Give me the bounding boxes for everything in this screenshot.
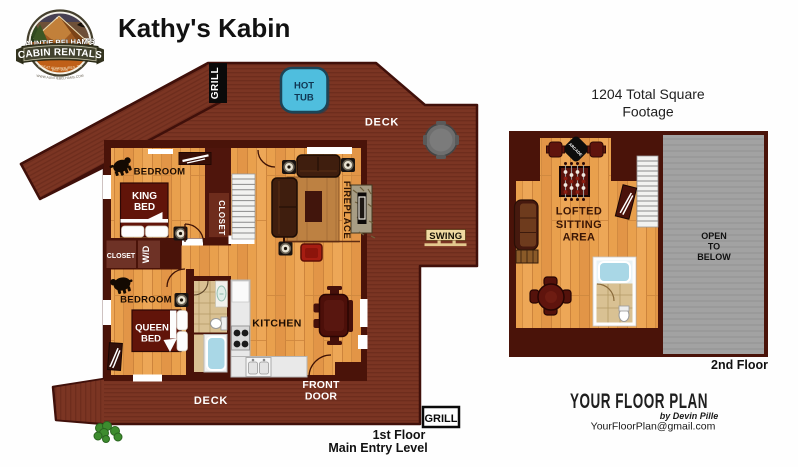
svg-text:GRILL: GRILL bbox=[425, 413, 458, 425]
svg-text:CLOSET: CLOSET bbox=[217, 200, 226, 235]
svg-text:TUB: TUB bbox=[294, 93, 314, 104]
svg-text:YourFloorPlan@gmail.com: YourFloorPlan@gmail.com bbox=[591, 421, 716, 433]
svg-text:AREA: AREA bbox=[563, 232, 596, 244]
svg-text:DOOR: DOOR bbox=[305, 391, 338, 403]
svg-text:YOUR FLOOR PLAN: YOUR FLOOR PLAN bbox=[570, 389, 708, 413]
svg-text:by Devin Pille: by Devin Pille bbox=[660, 411, 719, 421]
svg-text:BEDROOM: BEDROOM bbox=[120, 295, 172, 306]
svg-text:KITCHEN: KITCHEN bbox=[252, 318, 301, 330]
svg-text:BEDROOM: BEDROOM bbox=[134, 167, 186, 178]
svg-text:1204 Total Square: 1204 Total Square bbox=[591, 86, 705, 102]
svg-text:CLOSET: CLOSET bbox=[107, 253, 136, 260]
svg-text:FRONT: FRONT bbox=[302, 379, 340, 391]
svg-text:QUEEN: QUEEN bbox=[135, 323, 169, 334]
svg-text:BED: BED bbox=[141, 334, 161, 345]
svg-text:DECK: DECK bbox=[365, 117, 399, 129]
svg-text:KING: KING bbox=[132, 191, 157, 202]
svg-text:W/D: W/D bbox=[141, 245, 151, 263]
svg-text:OPEN: OPEN bbox=[701, 231, 727, 241]
svg-text:TO: TO bbox=[708, 242, 720, 252]
svg-text:SWING: SWING bbox=[429, 231, 462, 242]
svg-text:SITTING: SITTING bbox=[556, 219, 602, 231]
svg-text:1st Floor: 1st Floor bbox=[373, 428, 426, 442]
svg-text:Footage: Footage bbox=[622, 104, 674, 120]
svg-text:BELOW: BELOW bbox=[697, 252, 731, 262]
svg-text:DECK: DECK bbox=[194, 395, 228, 407]
svg-text:Kathy's Kabin: Kathy's Kabin bbox=[118, 13, 290, 43]
svg-text:EST. 1999: EST. 1999 bbox=[52, 68, 68, 72]
svg-text:HOT: HOT bbox=[294, 81, 314, 92]
svg-text:LOFTED: LOFTED bbox=[556, 206, 602, 218]
svg-text:BED: BED bbox=[134, 202, 155, 213]
svg-text:GRILL: GRILL bbox=[210, 67, 221, 100]
svg-text:FIREPLACE: FIREPLACE bbox=[341, 181, 352, 239]
svg-text:2nd Floor: 2nd Floor bbox=[711, 358, 768, 372]
svg-text:Main Entry Level: Main Entry Level bbox=[328, 441, 427, 455]
